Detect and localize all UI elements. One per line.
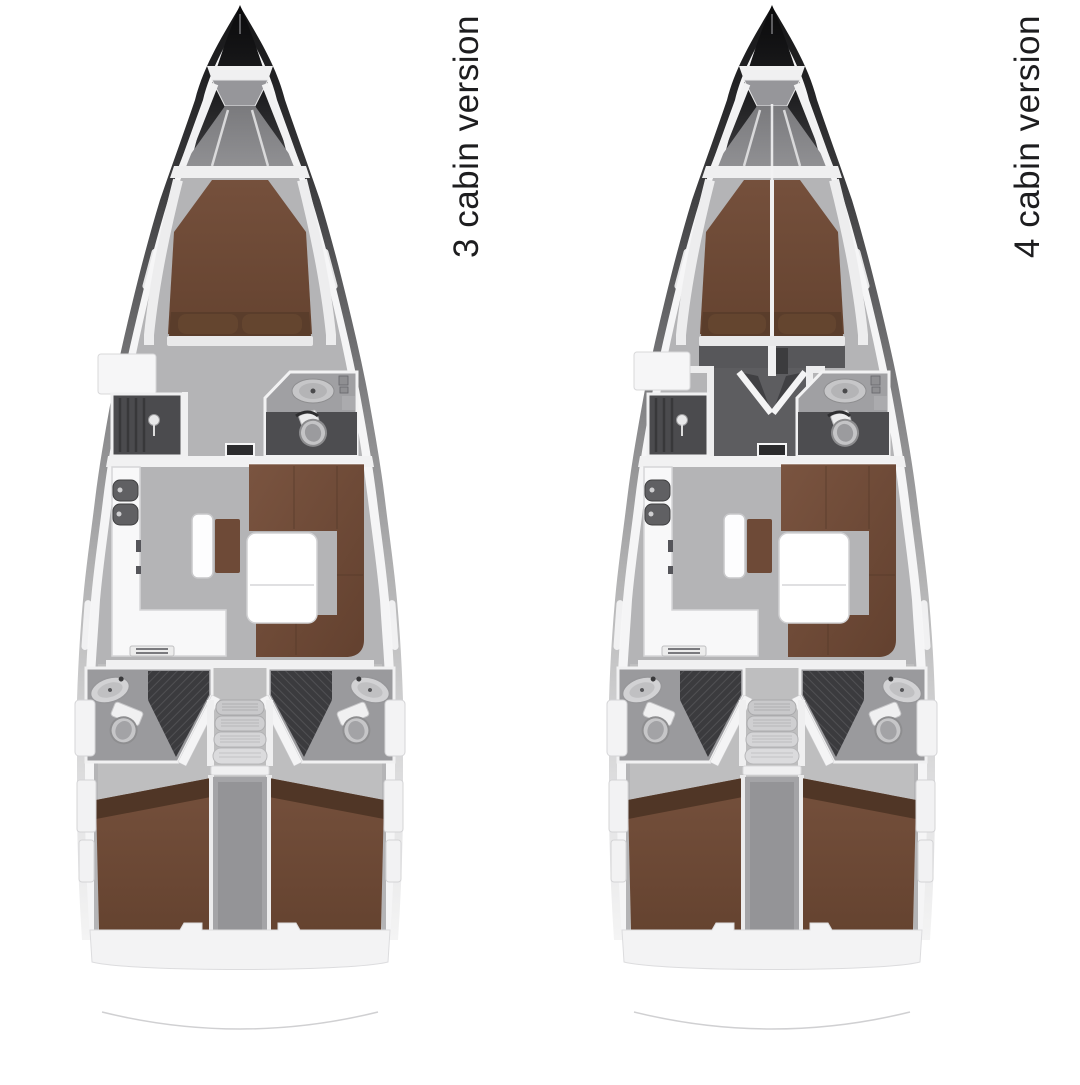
three-cabin-drawing <box>50 0 430 1080</box>
three-cabin-label: 3 cabin version <box>446 18 488 258</box>
four-cabin-floorplan <box>582 0 962 1080</box>
four-cabin-drawing <box>582 0 962 1080</box>
four-cabin-label: 4 cabin version <box>1007 18 1049 258</box>
three-cabin-floorplan <box>50 0 430 1080</box>
